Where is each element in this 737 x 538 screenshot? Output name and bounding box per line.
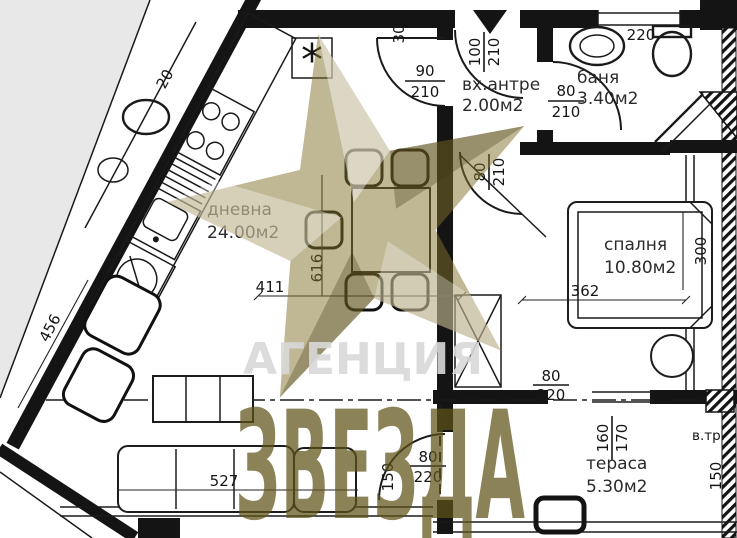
hall-bath-wall-bottom bbox=[537, 130, 553, 144]
bedside-table bbox=[651, 335, 693, 377]
dim-bath-w: 80 bbox=[556, 82, 575, 100]
dim-bath-window: 220 bbox=[627, 26, 656, 44]
dim-living-w: 90 bbox=[415, 62, 434, 80]
dim-living-width: 411 bbox=[256, 278, 285, 296]
bath-area: 3.40м2 bbox=[577, 89, 639, 109]
terrace-area: 5.30м2 bbox=[586, 477, 648, 497]
dim-entry-door: 100 210 bbox=[466, 32, 503, 72]
dim-living-h: 210 bbox=[411, 83, 440, 101]
dim-bt-h: 220 bbox=[537, 386, 566, 404]
watermark-agency-text: АГЕНЦИЯ bbox=[243, 334, 483, 385]
bottom-wall-stub bbox=[138, 518, 180, 538]
bedroom-area: 10.80м2 bbox=[604, 258, 676, 278]
watermark-brand-text: ЗВЕЗДА bbox=[235, 380, 525, 538]
hall-bedroom-wall bbox=[520, 142, 670, 155]
floor-plan: * bbox=[0, 0, 737, 538]
dim-entry-h: 210 bbox=[485, 38, 503, 67]
dim-bedroom-depth: 300 bbox=[692, 237, 710, 266]
dim-tw-w: 160 bbox=[594, 424, 612, 453]
bedroom-label: спалня bbox=[604, 235, 667, 255]
bath-bottom-wall bbox=[670, 140, 737, 153]
vent-shaft bbox=[706, 390, 734, 412]
dim-niche: 30 bbox=[390, 24, 408, 43]
dim-entry-w: 100 bbox=[466, 38, 484, 67]
entry-area: 2.00м2 bbox=[462, 96, 524, 116]
top-right-corner-block bbox=[700, 0, 737, 30]
terrace-label: тераса bbox=[586, 454, 647, 474]
hall-bath-wall-top bbox=[537, 28, 553, 62]
dim-tw-h: 170 bbox=[613, 424, 631, 453]
dim-bt-w: 80 bbox=[541, 367, 560, 385]
floor-plan-canvas: * bbox=[0, 0, 737, 538]
top-wall-mid bbox=[520, 10, 598, 28]
entry-label: вх.антре bbox=[462, 75, 540, 95]
vent-label: в.тр. bbox=[692, 428, 725, 444]
bath-label: баня bbox=[577, 68, 619, 88]
dim-terrace-side: 150 bbox=[707, 462, 725, 491]
dim-bedroom-width: 362 bbox=[571, 282, 600, 300]
